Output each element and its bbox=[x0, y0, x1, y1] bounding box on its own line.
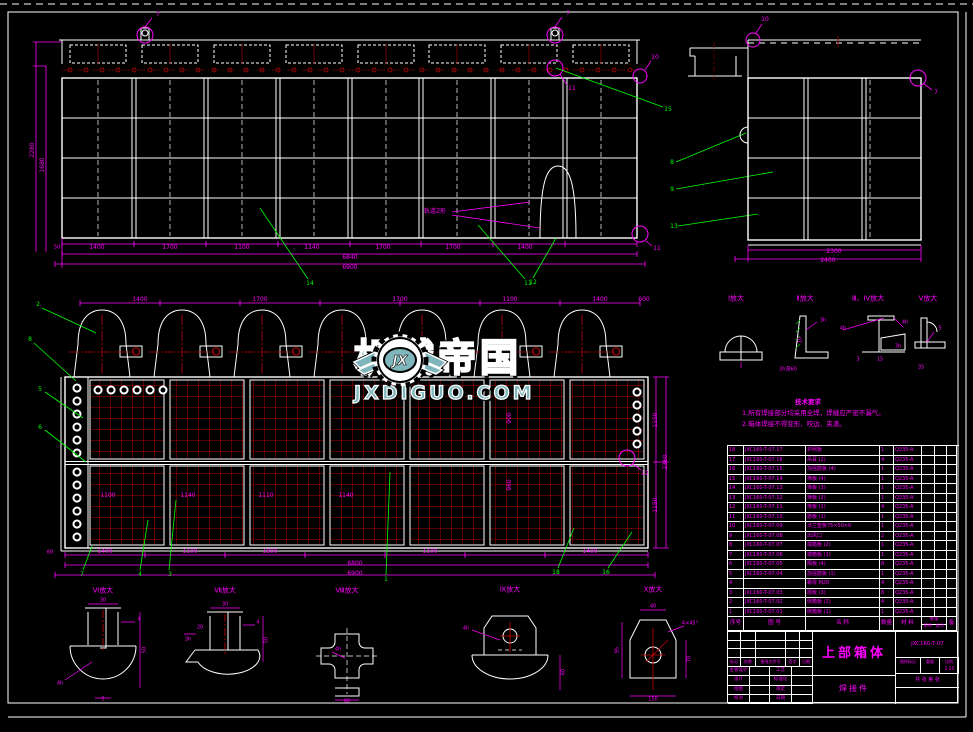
detail-caption: Ⅷ放大 bbox=[335, 588, 358, 595]
bom-no: 17 bbox=[728, 456, 744, 466]
detail-dim: 5 bbox=[101, 698, 104, 703]
plan-dim-inner: 1140 bbox=[338, 493, 353, 499]
bom-code: JXC160-T-07.08 bbox=[744, 532, 806, 542]
detail-dim: 30 bbox=[100, 599, 106, 604]
bom-header-weight: 重量 单件 总计 bbox=[922, 617, 947, 631]
plan-callout: 6 bbox=[38, 425, 42, 431]
bom-row: 6 JXC160-T-07.05 隔板 (4) 8 Q235-A bbox=[728, 560, 959, 570]
detail-dim: 4×45° bbox=[682, 622, 698, 627]
revision-header: 标记 bbox=[728, 658, 741, 667]
bom-row: 13 JXC160-T-07.12 筛板 (2) 1 Q235-A bbox=[728, 494, 959, 504]
bom-no: 6 bbox=[728, 560, 744, 570]
bom-code bbox=[744, 579, 806, 589]
detail-caption: Ⅰ放大 bbox=[728, 296, 744, 303]
detail-dim: 4h bbox=[463, 627, 469, 632]
plan-callout: 16 bbox=[602, 570, 610, 576]
drawing-type: 焊接件 bbox=[813, 676, 896, 704]
watermark: JX 机械帝国 JXDIGUO.COM bbox=[350, 324, 650, 406]
bom-code: JXC160-T-07.17 bbox=[744, 446, 806, 456]
plan-dim-inner: 1100 bbox=[100, 493, 115, 499]
front-arch-door bbox=[540, 166, 576, 238]
bom-name: 端箱板 (2) bbox=[806, 541, 880, 551]
bom-weight-unit bbox=[922, 570, 935, 580]
bom-name: 螺母 M20 bbox=[806, 579, 880, 589]
front-rivet-row bbox=[62, 44, 637, 70]
bom-weight-total bbox=[935, 541, 947, 551]
bom-no: 1 bbox=[728, 608, 744, 618]
revision-header: 签字 bbox=[786, 658, 800, 667]
bom-code: JXC160-T-07.13 bbox=[744, 484, 806, 494]
bom-row: 10 JXC160-T-07.09 法兰垫板75×50×6 1 Q235-A bbox=[728, 522, 959, 532]
drawing-number: JXC160-T-07 bbox=[896, 632, 959, 658]
bom-row: 2 JXC160-T-07.02 侧箱板 (2) 4 Q235-A bbox=[728, 598, 959, 608]
bom-mat: Q235-A bbox=[894, 465, 922, 475]
bom-no: 5 bbox=[728, 570, 744, 580]
bom-mat: Q235-A bbox=[894, 456, 922, 466]
bom-qty: 1 bbox=[880, 465, 894, 475]
plan-dim-bottom: 1800 bbox=[262, 549, 277, 555]
bom-qty: 4 bbox=[880, 579, 894, 589]
bom-qty: 1 bbox=[880, 513, 894, 523]
bom-code: JXC160-T-07.03 bbox=[744, 589, 806, 599]
plan-callout: 4 bbox=[138, 572, 142, 578]
bom-remark bbox=[947, 598, 957, 608]
bom-code: JXC160-T-07.01 bbox=[744, 608, 806, 618]
detail-note: 5 bbox=[938, 327, 941, 332]
front-grid-rows bbox=[62, 118, 637, 198]
bom-row: 18 JXC160-T-07.17 护网板 1 Q235-A bbox=[728, 446, 959, 456]
revision-header: 日期 bbox=[800, 658, 813, 667]
detail-1-dome bbox=[720, 336, 762, 360]
signature-row: 绘图 审定 bbox=[728, 686, 813, 695]
bom-name: 侧箱板 (1) bbox=[806, 608, 880, 618]
bom-mat: Q235-A bbox=[894, 541, 922, 551]
plan-dim-bottom: 1400 bbox=[582, 549, 597, 555]
bom-remark bbox=[947, 579, 957, 589]
bom-remark bbox=[947, 513, 957, 523]
detail-dim: 50 bbox=[143, 647, 148, 653]
front-dim-total-outer: 6900 bbox=[342, 265, 357, 271]
side-dim-outer: 2400 bbox=[820, 258, 835, 264]
plan-dim-top: 1700 bbox=[392, 297, 407, 303]
bom-remark bbox=[947, 456, 957, 466]
plan-dim-total-inner: 6800 bbox=[347, 561, 362, 567]
front-dim-total-inner: 6840 bbox=[342, 255, 357, 261]
detail-dim: 60 bbox=[562, 669, 567, 675]
bom-mat: Q235-A bbox=[894, 522, 922, 532]
callout-right: 8 bbox=[670, 160, 674, 166]
bom-weight-total bbox=[935, 456, 947, 466]
bom-remark bbox=[947, 465, 957, 475]
plan-callout: 3 bbox=[168, 572, 172, 578]
front-dim: 1700 bbox=[375, 245, 390, 251]
bom-name: 筛板 (3) bbox=[806, 484, 880, 494]
detail-dim: 20 bbox=[197, 626, 203, 631]
bom-code: JXC160-T-07.15 bbox=[744, 465, 806, 475]
detail-caption: Ⅲ、Ⅳ放大 bbox=[852, 296, 884, 303]
bom-remark bbox=[947, 494, 957, 504]
bom-weight-total bbox=[935, 484, 947, 494]
drawing-scale: 1:25 bbox=[940, 666, 959, 674]
bom-weight-total bbox=[935, 465, 947, 475]
front-annotation: 轨道Z形 bbox=[424, 209, 446, 215]
bom-qty: 1 bbox=[880, 494, 894, 504]
bom-weight-unit bbox=[922, 522, 935, 532]
side-grid bbox=[748, 78, 921, 240]
bom-header-mat: 材 料 bbox=[894, 617, 922, 631]
bom-name: 筋板 (1) bbox=[806, 513, 880, 523]
bom-qty: 1 bbox=[880, 475, 894, 485]
callout-right: 13 bbox=[670, 224, 678, 230]
bom-no: 4 bbox=[728, 579, 744, 589]
bom-code: JXC160-T-07.09 bbox=[744, 522, 806, 532]
bom-weight-unit bbox=[922, 532, 935, 542]
bom-weight-unit bbox=[922, 503, 935, 513]
front-flag: 11 bbox=[568, 86, 576, 92]
bom-row: 15 JXC160-T-07.14 筛板 (4) 1 Q235-A bbox=[728, 475, 959, 485]
detail-dim: 95 bbox=[616, 647, 621, 653]
bom-qty: 4 bbox=[880, 598, 894, 608]
detail-dim: 70 bbox=[688, 656, 693, 662]
detail-bottom-dims bbox=[65, 604, 686, 700]
detail-dim: 30 bbox=[222, 603, 228, 608]
tech-req-line: 2.箱体焊接不得变形、咬边、夹渣。 bbox=[742, 421, 846, 428]
bom-weight-unit bbox=[922, 494, 935, 504]
front-flag: 11 bbox=[653, 246, 661, 252]
bom-weight-total bbox=[935, 513, 947, 523]
bom-qty: 1 bbox=[880, 608, 894, 618]
side-flag: 10 bbox=[761, 17, 769, 23]
detail-dim: 4 bbox=[137, 618, 140, 623]
front-dim: 1700 bbox=[162, 245, 177, 251]
bom-name: 筛板 (4) bbox=[806, 475, 880, 485]
bom-remark bbox=[947, 503, 957, 513]
bom-code: JXC160-T-07.02 bbox=[744, 598, 806, 608]
bom-no: 3 bbox=[728, 589, 744, 599]
detail-note: 35 bbox=[918, 366, 924, 371]
bom-mat: Q235-A bbox=[894, 484, 922, 494]
plan-dim-top: 600 bbox=[638, 297, 649, 303]
bom-remark bbox=[947, 608, 957, 618]
bom-no: 12 bbox=[728, 503, 744, 513]
bom-row: 1 JXC160-T-07.01 侧箱板 (1) 1 Q235-A bbox=[728, 608, 959, 618]
front-flag: 7 bbox=[156, 12, 160, 18]
front-dim: 1700 bbox=[445, 245, 460, 251]
bom-weight-total bbox=[935, 522, 947, 532]
bom-name: 隔板 (3) bbox=[806, 589, 880, 599]
bom-row: 11 JXC160-T-07.10 筋板 (1) 1 Q235-A bbox=[728, 513, 959, 523]
bom-weight-total bbox=[935, 570, 947, 580]
bom-weight-unit bbox=[922, 579, 935, 589]
role-left: 主管设计 bbox=[728, 667, 750, 676]
plan-dim-inner: 900 bbox=[507, 412, 513, 423]
bom-weight-total bbox=[935, 494, 947, 504]
bom-row: 5 JXC160-T-07.04 加强筋板 (1) 1 Q235-A bbox=[728, 570, 959, 580]
detail-7-bowl bbox=[186, 612, 260, 674]
role-left: 设计 bbox=[728, 676, 750, 685]
bom-row: 4 螺母 M20 4 Q235-A bbox=[728, 579, 959, 589]
bom-code: JXC160-T-07.14 bbox=[744, 475, 806, 485]
bom-mat: Q235-A bbox=[894, 570, 922, 580]
plan-dim-inner: 960 bbox=[507, 479, 513, 490]
bom-no: 18 bbox=[728, 446, 744, 456]
bom-weight-unit bbox=[922, 541, 935, 551]
detail-caption: Ⅸ放大 bbox=[500, 587, 520, 594]
detail-note: 10 bbox=[799, 337, 804, 343]
bom-remark bbox=[947, 551, 957, 561]
bom-remark bbox=[947, 484, 957, 494]
bom-weight-unit bbox=[922, 484, 935, 494]
front-dim: 1400 bbox=[517, 245, 532, 251]
bom-row: 7 JXC160-T-07.06 端箱板 (1) 1 Q235-A bbox=[728, 551, 959, 561]
role-right: 日期 bbox=[770, 695, 792, 704]
bom-header-no: 序号 bbox=[728, 617, 744, 631]
revision-header: 处数 bbox=[741, 658, 756, 667]
bom-code: JXC160-T-07.10 bbox=[744, 513, 806, 523]
bom-no: 16 bbox=[728, 465, 744, 475]
bom-mat: Q235-A bbox=[894, 598, 922, 608]
bom-row: 9 JXC160-T-07.08 出风口 2 Q235-A bbox=[728, 532, 959, 542]
bom-mat: Q235-A bbox=[894, 608, 922, 618]
bom-header-name: 名 称 bbox=[806, 617, 880, 631]
front-dim: 1100 bbox=[234, 245, 249, 251]
plan-dim-bottom: 60 bbox=[47, 551, 53, 556]
bom-remark bbox=[947, 532, 957, 542]
detail-note: 3h深60 bbox=[779, 368, 797, 373]
bom-row: 12 JXC160-T-07.11 筛板 (1) 4 Q235-A bbox=[728, 503, 959, 513]
side-flag: 7 bbox=[934, 90, 938, 96]
plan-dim-right: 2360 bbox=[663, 454, 669, 469]
tech-req-line: 1.所有焊接部分均采用全焊，焊缝应严密不漏气。 bbox=[742, 410, 885, 417]
bom-no: 15 bbox=[728, 475, 744, 485]
bom-qty: 4 bbox=[880, 503, 894, 513]
drawing-title: 上部箱体 bbox=[813, 632, 896, 676]
bom-qty: 8 bbox=[880, 560, 894, 570]
bom-weight-unit bbox=[922, 589, 935, 599]
bom-mat: Q235-A bbox=[894, 513, 922, 523]
bom-weight-total bbox=[935, 560, 947, 570]
plan-dim-bottom: 1400 bbox=[97, 549, 112, 555]
plan-dim-top: 1100 bbox=[502, 297, 517, 303]
side-step-bracket bbox=[688, 40, 748, 78]
bom-name: 端箱板 (1) bbox=[806, 551, 880, 561]
bom-code: JXC160-T-07.12 bbox=[744, 494, 806, 504]
bom-weight-total bbox=[935, 608, 947, 618]
bom-no: 13 bbox=[728, 494, 744, 504]
bom-qty: 1 bbox=[880, 446, 894, 456]
revision-grid bbox=[728, 632, 813, 658]
plan-dim-right: 1150 bbox=[653, 497, 659, 512]
detail-note: 4h bbox=[840, 327, 846, 332]
bom-table: 18 JXC160-T-07.17 护网板 1 Q235-A 17 JXC160… bbox=[727, 445, 959, 631]
bom-name: 筛板 (1) bbox=[806, 503, 880, 513]
bom-mat: Q235-A bbox=[894, 475, 922, 485]
front-callout: 12 bbox=[529, 280, 537, 286]
front-callout: 14 bbox=[306, 281, 314, 287]
bom-header-unit: 单件 bbox=[924, 625, 933, 630]
signature-row: 校对 日期 bbox=[728, 695, 813, 704]
bom-mat: Q235-A bbox=[894, 589, 922, 599]
bom-remark bbox=[947, 446, 957, 456]
detail-caption: Ⅶ放大 bbox=[214, 588, 236, 595]
bom-name: 加强筋板 (1) bbox=[806, 570, 880, 580]
bom-qty: 1 bbox=[880, 570, 894, 580]
bom-code: JXC160-T-07.04 bbox=[744, 570, 806, 580]
role-right: 工艺 bbox=[770, 667, 792, 676]
bom-row: 14 JXC160-T-07.13 筛板 (3) 1 Q235-A bbox=[728, 484, 959, 494]
bom-mat: Q235-A bbox=[894, 494, 922, 504]
detail-dim: 4 bbox=[256, 621, 259, 626]
bom-code: JXC160-T-07.06 bbox=[744, 551, 806, 561]
plan-dim-right: 1150 bbox=[653, 412, 659, 427]
detail-note: 4h bbox=[902, 321, 908, 326]
detail-note: 3 bbox=[856, 358, 859, 363]
plan-callout: 18 bbox=[552, 570, 560, 576]
front-lifting-lugs bbox=[141, 28, 559, 40]
detail-dim: 50 bbox=[265, 637, 270, 643]
bom-weight-unit bbox=[922, 608, 935, 618]
bom-no: 7 bbox=[728, 551, 744, 561]
title-block: 标记处数更改文件号签字日期 主管设计 工艺 设计 标准化 绘图 审定 校对 日期… bbox=[727, 631, 958, 703]
bom-weight-unit bbox=[922, 551, 935, 561]
detail-note: 15 bbox=[877, 358, 883, 363]
bom-row: 8 JXC160-T-07.07 端箱板 (2) 1 Q235-A bbox=[728, 541, 959, 551]
detail-caption: Ⅵ放大 bbox=[93, 588, 113, 595]
cad-drawing-sheet: 2280 1680 50 1400 1700 1100 1140 1700 17… bbox=[0, 0, 973, 732]
bom-mat: Q235-A bbox=[894, 551, 922, 561]
bom-row: 17 JXC160-T-07.16 吊耳 (2) 4 Q235-A bbox=[728, 456, 959, 466]
bom-qty: 1 bbox=[880, 484, 894, 494]
detail-note: 3h bbox=[820, 319, 826, 324]
role-right: 审定 bbox=[770, 686, 792, 695]
front-dim: 1140 bbox=[304, 245, 319, 251]
plan-flag: 12 bbox=[641, 471, 649, 477]
bom-weight-total bbox=[935, 579, 947, 589]
stamp-header: 重量 bbox=[921, 658, 940, 674]
bom-header-weight-label: 重量 bbox=[922, 618, 946, 623]
signature-row: 设计 标准化 bbox=[728, 676, 813, 685]
detail-caption: Ⅹ放大 bbox=[644, 587, 663, 594]
bom-qty: 4 bbox=[880, 456, 894, 466]
plan-dim-inner: 1110 bbox=[258, 493, 273, 499]
bom-name: 加强筋板 (4) bbox=[806, 465, 880, 475]
role-right: 标准化 bbox=[770, 676, 792, 685]
detail-caption: Ⅴ放大 bbox=[919, 296, 938, 303]
bom-name: 护网板 bbox=[806, 446, 880, 456]
bom-no: 14 bbox=[728, 484, 744, 494]
bom-row: 3 JXC160-T-07.03 隔板 (3) 8 Q235-A bbox=[728, 589, 959, 599]
front-flag: 7 bbox=[566, 11, 570, 17]
role-left: 校对 bbox=[728, 695, 750, 704]
side-detail-circles bbox=[746, 24, 932, 90]
tech-req-title: 技术要求 bbox=[795, 399, 821, 406]
bom-mat: Q235-A bbox=[894, 446, 922, 456]
bom-weight-total bbox=[935, 503, 947, 513]
logo-initials: JX bbox=[390, 354, 409, 369]
side-view bbox=[688, 36, 921, 245]
bom-weight-unit bbox=[922, 465, 935, 475]
bom-weight-unit bbox=[922, 475, 935, 485]
sheet-note: 共 张 第 张 bbox=[896, 674, 959, 688]
bom-name: 出风口 bbox=[806, 532, 880, 542]
front-dim-height-inner: 1680 bbox=[40, 157, 46, 172]
bom-mat: Q235-A bbox=[894, 503, 922, 513]
bom-weight-unit bbox=[922, 456, 935, 466]
detail-note: 3h bbox=[895, 345, 901, 350]
bom-weight-unit bbox=[922, 598, 935, 608]
detail-dim: 60 bbox=[344, 700, 350, 705]
bom-name: 法兰垫板75×50×6 bbox=[806, 522, 880, 532]
stamp-header: 图样标记 bbox=[896, 658, 921, 674]
bom-mat: Q235-A bbox=[894, 532, 922, 542]
detail-dim: 40 bbox=[650, 605, 656, 610]
bom-remark bbox=[947, 475, 957, 485]
bom-header-code: 图 号 bbox=[744, 617, 806, 631]
watermark-logo: JX bbox=[350, 324, 450, 394]
bom-qty: 1 bbox=[880, 551, 894, 561]
plan-callout: 1 bbox=[384, 577, 388, 583]
front-dim-height-outer: 2280 bbox=[30, 142, 36, 157]
role-left: 绘图 bbox=[728, 686, 750, 695]
detail-dim: 150 bbox=[648, 698, 658, 703]
bom-name: 吊耳 (2) bbox=[806, 456, 880, 466]
detail-views-bottom bbox=[70, 608, 676, 696]
bom-weight-total bbox=[935, 475, 947, 485]
revision-header: 更改文件号 bbox=[756, 658, 786, 667]
bom-weight-total bbox=[935, 589, 947, 599]
bom-no: 8 bbox=[728, 541, 744, 551]
plan-callout: 8 bbox=[28, 337, 32, 343]
plan-callout: 2 bbox=[36, 302, 40, 308]
plan-dim-inner: 1140 bbox=[180, 493, 195, 499]
bom-no: 11 bbox=[728, 513, 744, 523]
bom-name: 隔板 (4) bbox=[806, 560, 880, 570]
bom-code: JXC160-T-07.11 bbox=[744, 503, 806, 513]
detail-4-corner bbox=[915, 318, 945, 348]
bom-name: 筛板 (2) bbox=[806, 494, 880, 504]
bom-remark bbox=[947, 589, 957, 599]
plan-dim-top: 1400 bbox=[132, 297, 147, 303]
bom-weight-unit bbox=[922, 560, 935, 570]
side-dim-inner: 2300 bbox=[826, 249, 841, 255]
bom-code: JXC160-T-07.07 bbox=[744, 541, 806, 551]
detail-dim: 4h bbox=[57, 682, 63, 687]
bom-no: 2 bbox=[728, 598, 744, 608]
front-dim: 1400 bbox=[89, 245, 104, 251]
bom-mat: Q235-A bbox=[894, 579, 922, 589]
front-view bbox=[59, 28, 640, 238]
signature-row: 主管设计 工艺 bbox=[728, 667, 813, 676]
detail-dim: 3h bbox=[185, 638, 191, 643]
bom-qty: 1 bbox=[880, 541, 894, 551]
bom-weight-unit bbox=[922, 513, 935, 523]
plan-callout: 5 bbox=[38, 387, 42, 393]
detail-views-right bbox=[720, 316, 945, 360]
bom-remark bbox=[947, 541, 957, 551]
front-flag: 10 bbox=[651, 55, 659, 61]
bom-header-total: 总计 bbox=[936, 625, 945, 630]
revision-headers: 标记处数更改文件号签字日期 bbox=[728, 658, 813, 667]
bom-remark bbox=[947, 522, 957, 532]
detail-dim: 4h bbox=[335, 648, 341, 653]
bom-name: 侧箱板 (2) bbox=[806, 598, 880, 608]
bom-weight-total bbox=[935, 532, 947, 542]
front-top-strip-dashed bbox=[70, 45, 629, 63]
bom-qty: 8 bbox=[880, 589, 894, 599]
front-annotation-leader bbox=[452, 202, 540, 228]
bom-row: 16 JXC160-T-07.15 加强筋板 (4) 1 Q235-A bbox=[728, 465, 959, 475]
plan-dim-total-outer: 6900 bbox=[347, 571, 362, 577]
